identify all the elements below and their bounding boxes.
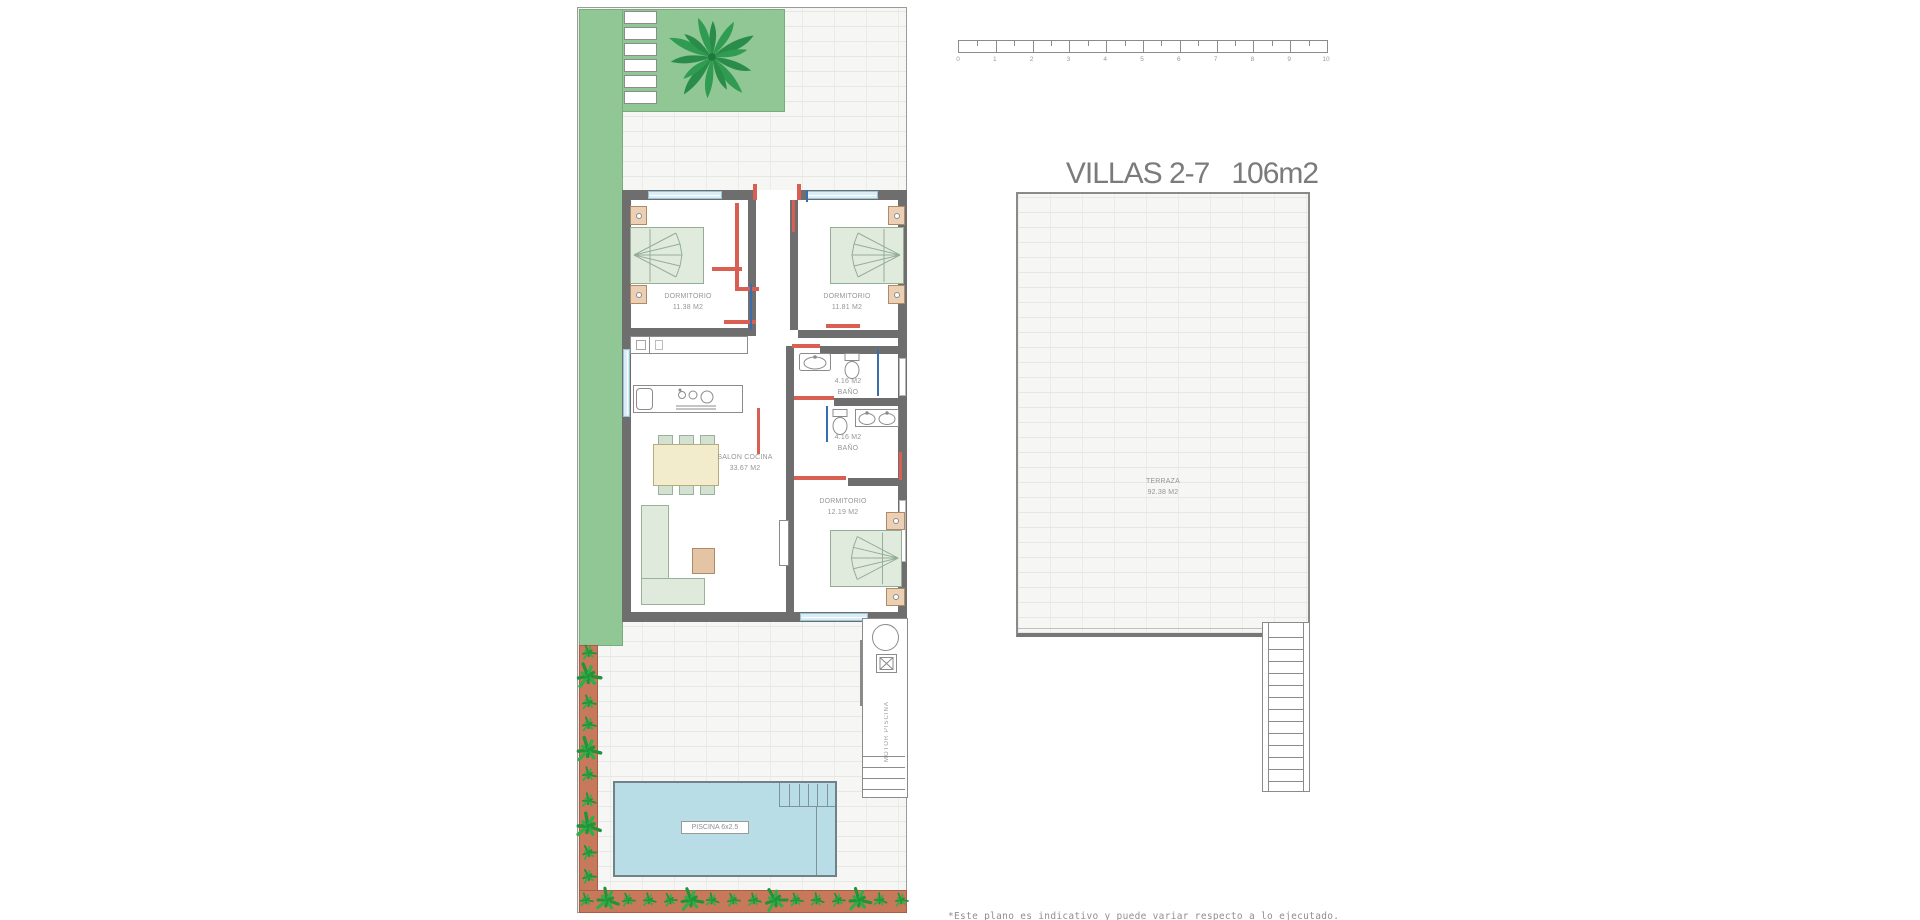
plant <box>705 893 719 907</box>
wardrobe-marker <box>735 203 739 291</box>
interior-wall <box>848 478 898 486</box>
wall-marker <box>757 408 760 454</box>
plant <box>581 645 596 660</box>
scale-tick-label: 6 <box>1172 56 1186 63</box>
footnote-es: *Este plano es indicativo y puede variar… <box>948 911 1369 920</box>
cooktop <box>672 386 720 412</box>
double-sink <box>855 409 899 427</box>
room-area: 11.38 M2 <box>646 302 730 313</box>
nightstand <box>888 206 905 225</box>
door-marker <box>826 324 860 328</box>
room-name: TERRAZA <box>1121 476 1205 487</box>
scale-tick-label: 7 <box>1209 56 1223 63</box>
sink <box>799 353 831 371</box>
kitchen-appliance <box>655 340 663 350</box>
plant <box>581 869 596 884</box>
room-area: 12.19 M2 <box>801 507 885 518</box>
pool-label-text: PISCINA 6x2.5 <box>692 824 739 831</box>
entry-door-opening <box>756 190 798 200</box>
room-label-bano-1: 4.16 M2 BAÑO <box>816 376 880 398</box>
door-marker <box>753 184 757 200</box>
plant <box>789 893 803 907</box>
room-label-terraza: TERRAZA 92.38 M2 <box>1121 476 1205 498</box>
bed-headboard-pattern <box>630 227 704 284</box>
plant <box>642 893 656 907</box>
island-sink <box>636 388 653 410</box>
door-marker <box>797 184 801 200</box>
palm-tree-icon <box>663 8 761 106</box>
room-label-dormitorio-3: DORMITORIO 12.19 M2 <box>801 496 885 518</box>
plant <box>747 893 761 907</box>
room-area: 11.81 M2 <box>805 302 889 313</box>
room-label-dormitorio-1: DORMITORIO 11.38 M2 <box>646 291 730 313</box>
chair <box>700 485 715 495</box>
kitchen-appliance <box>636 340 646 350</box>
door-marker <box>794 476 846 480</box>
scale-tick-label: 2 <box>1025 56 1039 63</box>
plant <box>575 737 601 763</box>
window <box>899 358 906 396</box>
plant <box>663 893 677 907</box>
nightstand <box>886 588 905 606</box>
room-label-dormitorio-2: DORMITORIO 11.81 M2 <box>805 291 889 313</box>
interior-wall <box>798 330 898 338</box>
room-label-salon: SALON COCINA 33.67 M2 <box>711 452 779 474</box>
wardrobe-marker <box>735 287 759 291</box>
nightstand <box>630 206 647 225</box>
plan-title-line1: VILLAS 2-7 106m2 <box>1020 152 1364 196</box>
plant <box>581 717 596 732</box>
scale-tick-label: 4 <box>1098 56 1112 63</box>
wall-marker <box>899 452 902 480</box>
window <box>806 191 878 199</box>
plant <box>581 767 596 782</box>
plumbing-line <box>750 284 752 330</box>
door-line <box>860 640 862 706</box>
scale-bar-ruler <box>958 40 1328 53</box>
room-name: BAÑO <box>816 387 880 398</box>
garden-side-strip <box>579 9 623 646</box>
door-marker <box>792 344 820 348</box>
scale-tick-label: 10 <box>1319 56 1333 63</box>
stepping-stones <box>624 11 657 107</box>
chair <box>679 485 694 495</box>
plant <box>847 888 871 912</box>
plant <box>873 893 887 907</box>
wall-marker <box>792 200 795 232</box>
plant <box>831 893 845 907</box>
dining-table <box>653 444 719 486</box>
plant <box>581 845 596 860</box>
wardrobe <box>779 520 789 566</box>
room-name: BAÑO <box>816 443 880 454</box>
terrace-plan <box>1016 192 1310 637</box>
chair <box>658 485 673 495</box>
stepping-stone <box>624 91 657 104</box>
scale-tick-label: 8 <box>1245 56 1259 63</box>
window <box>648 191 722 199</box>
stairs-treads <box>1263 623 1309 791</box>
room-label-bano-2: 4.16 M2 BAÑO <box>816 432 880 454</box>
stepping-stone <box>624 59 657 72</box>
room-name: SALON COCINA <box>711 452 779 463</box>
stepping-stone <box>624 75 657 88</box>
stepping-stone <box>624 11 657 24</box>
scale-tick-label: 5 <box>1135 56 1149 63</box>
scale-tick-label: 9 <box>1282 56 1296 63</box>
plant <box>579 893 593 907</box>
motor-area-steps <box>862 754 908 798</box>
plant <box>575 813 601 839</box>
interior-wall <box>631 328 756 336</box>
nightstand <box>886 512 905 530</box>
pool-steps <box>779 783 835 807</box>
stepping-stone <box>624 43 657 56</box>
window <box>800 613 868 621</box>
room-area: 4.16 M2 <box>816 376 880 387</box>
room-name: DORMITORIO <box>805 291 889 302</box>
pool-steps-line <box>816 807 817 875</box>
footnotes: *Este plano es indicativo y puede variar… <box>948 888 1369 920</box>
nightstand <box>630 285 647 304</box>
plant <box>575 663 601 689</box>
plant <box>595 888 619 912</box>
interior-wall <box>786 346 794 612</box>
window <box>623 349 630 417</box>
interior-wall <box>834 398 898 406</box>
scale-tick-label: 3 <box>1061 56 1075 63</box>
pool-motor-circle <box>872 624 899 651</box>
plant <box>810 893 824 907</box>
plumbing-line <box>806 190 808 202</box>
plant <box>581 793 596 808</box>
pool-motor-unit <box>876 654 897 673</box>
scale-tick-label: 0 <box>951 56 965 63</box>
bed-headboard-pattern <box>830 530 902 587</box>
scale-tick-label: 1 <box>988 56 1002 63</box>
room-area: 4.16 M2 <box>816 432 880 443</box>
plant <box>726 893 740 907</box>
stepping-stone <box>624 27 657 40</box>
plant <box>581 695 596 710</box>
room-name: DORMITORIO <box>801 496 885 507</box>
terrace-stairs <box>1262 622 1310 792</box>
plant <box>679 888 703 912</box>
floorplan-canvas: 012345678910 VILLAS 2-7 106m2 PLOT 235m2 <box>0 0 1920 920</box>
bed-headboard-pattern <box>830 227 904 284</box>
room-name: DORMITORIO <box>646 291 730 302</box>
room-area: 92.38 M2 <box>1121 487 1205 498</box>
nightstand <box>888 285 905 304</box>
pool-motor-label: MOTOR PISCINA <box>884 688 890 762</box>
room-area: 33.67 M2 <box>711 463 779 474</box>
sofa <box>641 578 705 605</box>
wall-marker <box>712 267 742 271</box>
plant <box>763 888 787 912</box>
coffee-table <box>692 548 715 574</box>
scale-bar: 012345678910 <box>958 40 1328 66</box>
pool-label: PISCINA 6x2.5 <box>681 821 749 834</box>
plant <box>894 893 908 907</box>
plant <box>621 893 635 907</box>
